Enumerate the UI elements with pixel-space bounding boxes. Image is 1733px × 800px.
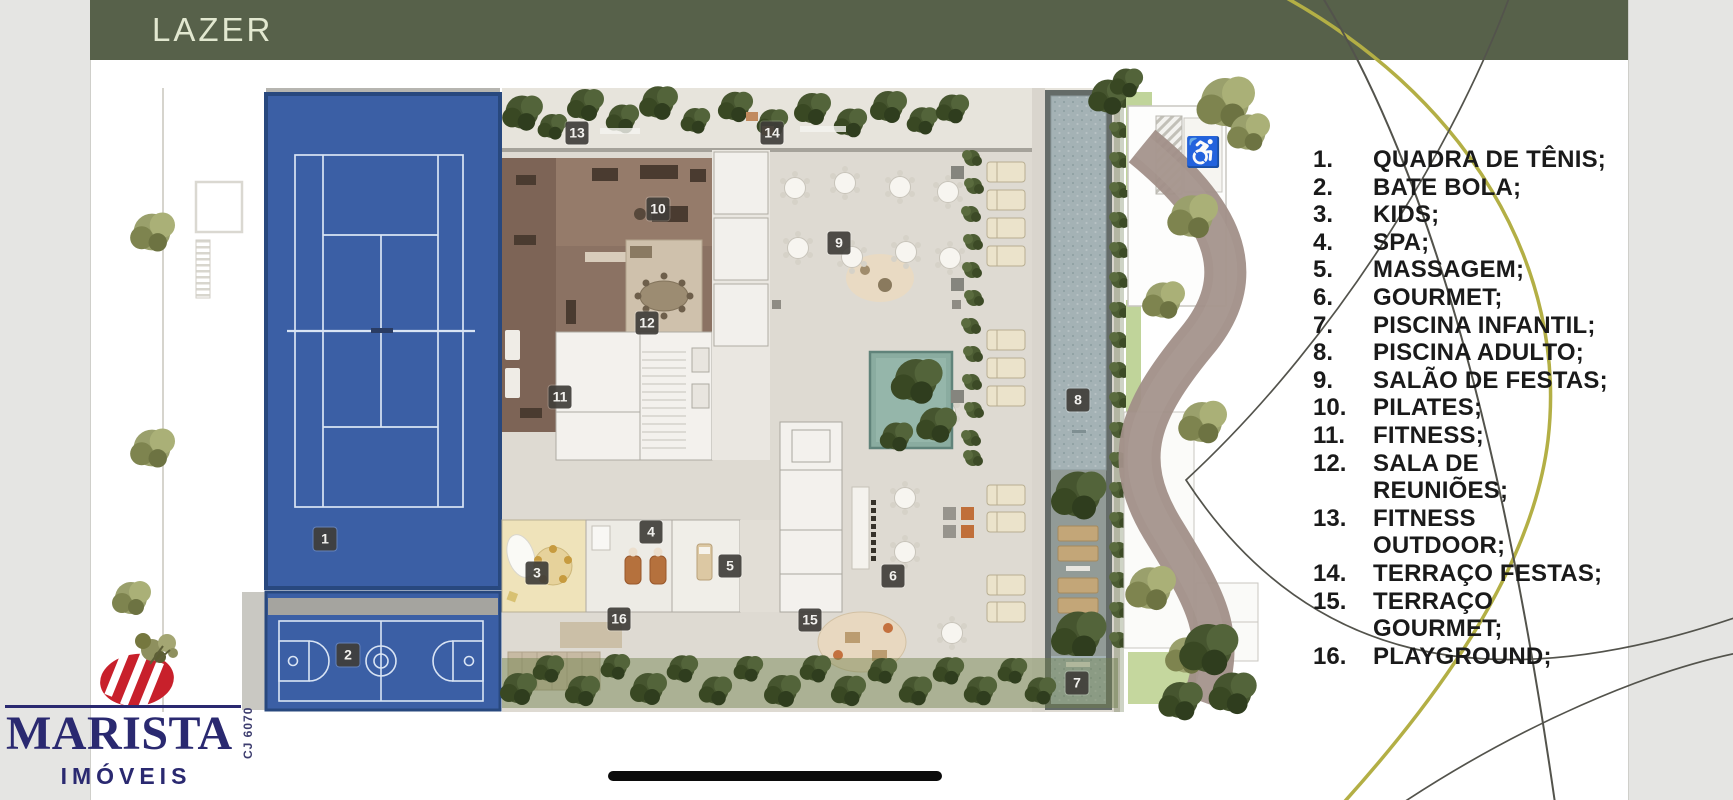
legend-item: 8.PISCINA ADULTO; bbox=[1313, 339, 1631, 367]
corridor-rooms bbox=[712, 150, 770, 460]
tree-band-bottom bbox=[500, 654, 1118, 708]
plan-marker-6: 6 bbox=[882, 565, 905, 588]
legend-item-label: PISCINA ADULTO; bbox=[1373, 339, 1631, 367]
legend-item: 1.QUADRA DE TÊNIS; bbox=[1313, 146, 1631, 174]
legend-item: 14.TERRAÇO FESTAS; bbox=[1313, 560, 1631, 588]
legend-item-number: 16. bbox=[1313, 643, 1373, 671]
legend-item-label: KIDS; bbox=[1373, 201, 1631, 229]
legend-item-number: 6. bbox=[1313, 284, 1373, 312]
logo-subtitle: IMÓVEIS bbox=[0, 763, 252, 790]
plan-marker-16: 16 bbox=[608, 608, 631, 631]
plan-marker-15: 15 bbox=[799, 609, 822, 632]
legend-item-label: PISCINA INFANTIL; bbox=[1373, 312, 1631, 340]
plan-marker-8: 8 bbox=[1067, 389, 1090, 412]
legend-item-number: 2. bbox=[1313, 174, 1373, 202]
legend-item-number: 4. bbox=[1313, 229, 1373, 257]
logo-registration: CJ 6070 bbox=[241, 707, 255, 759]
plan-marker-13: 13 bbox=[566, 122, 589, 145]
legend-item-number: 3. bbox=[1313, 201, 1373, 229]
legend-item: 9.SALÃO DE FESTAS; bbox=[1313, 367, 1631, 395]
legend-item-label: PLAYGROUND; bbox=[1373, 643, 1631, 671]
plan-marker-1: 1 bbox=[314, 528, 337, 551]
legend-item-label: SALA DEREUNIÕES; bbox=[1373, 450, 1631, 505]
legend-item: 5.MASSAGEM; bbox=[1313, 256, 1631, 284]
legend-item-number: 14. bbox=[1313, 560, 1373, 588]
legend-item-number: 13. bbox=[1313, 505, 1373, 533]
legend-item-label: SALÃO DE FESTAS; bbox=[1373, 367, 1631, 395]
legend-item-label: FITNESS; bbox=[1373, 422, 1631, 450]
legend-item-label: MASSAGEM; bbox=[1373, 256, 1631, 284]
plan-marker-14: 14 bbox=[761, 122, 784, 145]
legend-item: 10.PILATES; bbox=[1313, 394, 1631, 422]
legend-item-label: PILATES; bbox=[1373, 394, 1631, 422]
legend: 1.QUADRA DE TÊNIS;2.BATE BOLA;3.KIDS;4.S… bbox=[1313, 146, 1631, 670]
plan-marker-3: 3 bbox=[526, 562, 549, 585]
legend-item: 7.PISCINA INFANTIL; bbox=[1313, 312, 1631, 340]
legend-item: 4.SPA; bbox=[1313, 229, 1631, 257]
legend-item-label: GOURMET; bbox=[1373, 284, 1631, 312]
legend-item-number: 9. bbox=[1313, 367, 1373, 395]
legend-item-number: 8. bbox=[1313, 339, 1373, 367]
tennis-court bbox=[266, 88, 500, 588]
legend-item-number: 11. bbox=[1313, 422, 1373, 450]
legend-item-number: 12. bbox=[1313, 450, 1373, 478]
legend-item-number: 5. bbox=[1313, 256, 1373, 284]
legend-item-number: 1. bbox=[1313, 146, 1373, 174]
legend-item-label: TERRAÇO FESTAS; bbox=[1373, 560, 1631, 588]
plan-marker-11: 11 bbox=[549, 386, 572, 409]
bate-bola-court bbox=[242, 592, 500, 710]
legend-item-label: TERRAÇOGOURMET; bbox=[1373, 588, 1631, 643]
legend-item: 6.GOURMET; bbox=[1313, 284, 1631, 312]
legend-item: 11.FITNESS; bbox=[1313, 422, 1631, 450]
legend-item: 15.TERRAÇOGOURMET; bbox=[1313, 588, 1631, 643]
legend-item-number: 7. bbox=[1313, 312, 1373, 340]
legend-item-number: 10. bbox=[1313, 394, 1373, 422]
legend-item: 3.KIDS; bbox=[1313, 201, 1631, 229]
courtyard-pool bbox=[870, 352, 957, 451]
page: LAZER 1.QUADRA DE TÊNIS;2.BATE BOLA;3.KI… bbox=[0, 0, 1733, 800]
plan-marker-4: 4 bbox=[640, 521, 663, 544]
plan-marker-7: 7 bbox=[1066, 672, 1089, 695]
page-title: LAZER bbox=[152, 0, 273, 60]
legend-item-label: QUADRA DE TÊNIS; bbox=[1373, 146, 1631, 174]
plan-marker-10: 10 bbox=[647, 198, 670, 221]
plan-marker-2: 2 bbox=[337, 644, 360, 667]
legend-item-number: 15. bbox=[1313, 588, 1373, 616]
legend-item-label: SPA; bbox=[1373, 229, 1631, 257]
divider-line bbox=[608, 771, 942, 781]
legend-item: 2.BATE BOLA; bbox=[1313, 174, 1631, 202]
legend-item: 12.SALA DEREUNIÕES; bbox=[1313, 450, 1631, 505]
plan-marker-12: 12 bbox=[636, 312, 659, 335]
plan-marker-9: 9 bbox=[828, 232, 851, 255]
wheelchair-accessibility-icon: ♿ bbox=[1185, 136, 1221, 170]
header-bar bbox=[90, 0, 1628, 60]
legend-item: 13.FITNESSOUTDOOR; bbox=[1313, 505, 1631, 560]
legend-item-label: BATE BOLA; bbox=[1373, 174, 1631, 202]
logo-wordmark: MARISTA bbox=[6, 706, 233, 761]
legend-item: 16.PLAYGROUND; bbox=[1313, 643, 1631, 671]
legend-item-label: FITNESSOUTDOOR; bbox=[1373, 505, 1631, 560]
building-core bbox=[556, 332, 712, 460]
plan-marker-5: 5 bbox=[719, 555, 742, 578]
